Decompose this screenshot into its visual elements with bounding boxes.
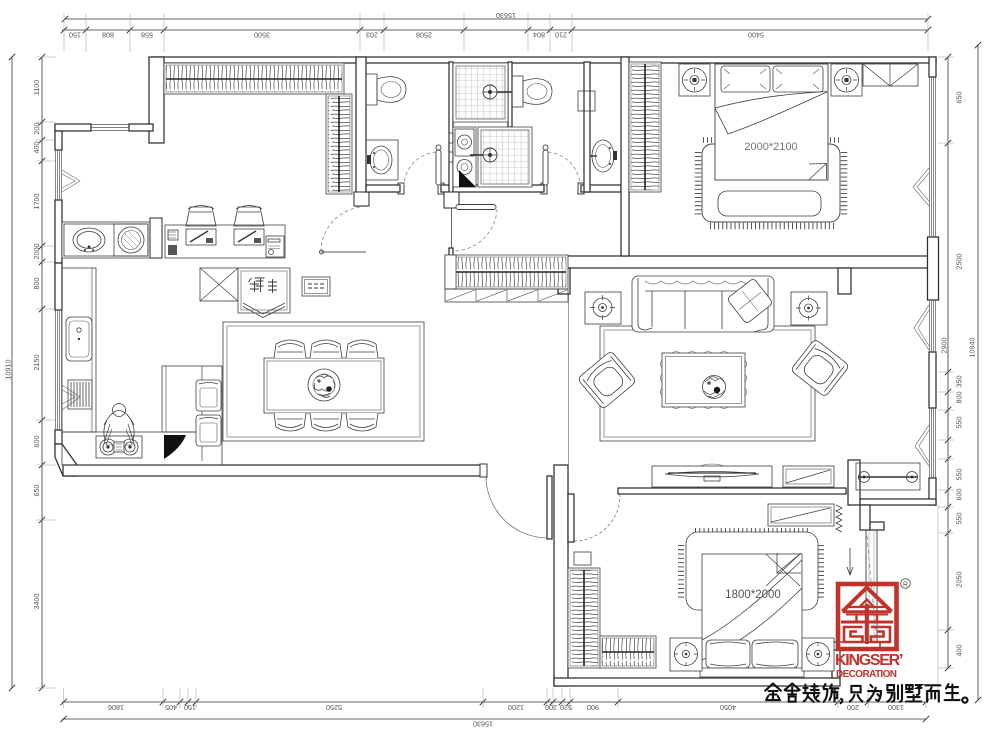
svg-text:2050: 2050 (955, 572, 964, 588)
svg-text:1800*2000: 1800*2000 (725, 589, 781, 601)
svg-text:203: 203 (366, 30, 378, 39)
svg-text:600: 600 (32, 436, 41, 448)
svg-text:10910: 10910 (4, 360, 13, 380)
svg-text:5250: 5250 (326, 703, 342, 712)
svg-text:200: 200 (545, 703, 557, 712)
svg-text:1200: 1200 (508, 703, 524, 712)
svg-text:10940: 10940 (968, 338, 977, 358)
svg-text:808: 808 (102, 30, 114, 39)
svg-text:900: 900 (587, 703, 599, 712)
svg-text:150: 150 (184, 703, 196, 712)
svg-text:1700: 1700 (32, 194, 41, 210)
svg-text:KINGSER’: KINGSER’ (835, 652, 903, 669)
svg-text:2150: 2150 (32, 355, 41, 371)
svg-text:R: R (903, 582, 908, 589)
svg-text:520: 520 (560, 703, 572, 712)
svg-text:15630: 15630 (496, 11, 516, 20)
svg-text:1806: 1806 (108, 703, 124, 712)
svg-text:2500: 2500 (955, 254, 964, 270)
svg-text:350: 350 (955, 376, 964, 388)
svg-text:550: 550 (955, 469, 964, 481)
svg-text:5400: 5400 (748, 30, 764, 39)
svg-text:405: 405 (165, 703, 177, 712)
svg-text:3500: 3500 (254, 30, 270, 39)
svg-text:3400: 3400 (32, 594, 41, 610)
svg-text:600: 600 (955, 489, 964, 501)
svg-text:1100: 1100 (32, 80, 41, 95)
svg-text:650: 650 (32, 485, 41, 497)
svg-text:2508: 2508 (416, 30, 432, 39)
svg-text:2900: 2900 (940, 338, 949, 354)
svg-text:2000*2100: 2000*2100 (744, 141, 797, 153)
svg-text:DECORATION: DECORATION (836, 669, 897, 680)
svg-text:400: 400 (955, 645, 964, 657)
svg-text:558: 558 (141, 30, 153, 39)
svg-text:4050: 4050 (720, 703, 736, 712)
svg-text:804: 804 (533, 30, 545, 39)
svg-text:550: 550 (955, 513, 964, 525)
svg-text:210: 210 (555, 30, 567, 39)
svg-text:2000: 2000 (32, 244, 41, 260)
svg-text:800: 800 (32, 278, 41, 290)
svg-text:800: 800 (955, 392, 964, 404)
svg-text:15630: 15630 (473, 720, 493, 729)
svg-text:200: 200 (32, 123, 41, 135)
svg-text:150: 150 (69, 30, 81, 39)
svg-text:650: 650 (955, 92, 964, 104)
svg-text:550: 550 (955, 417, 964, 429)
svg-text:200: 200 (847, 703, 859, 712)
svg-text:400: 400 (32, 142, 41, 154)
svg-text:1300: 1300 (888, 703, 904, 712)
